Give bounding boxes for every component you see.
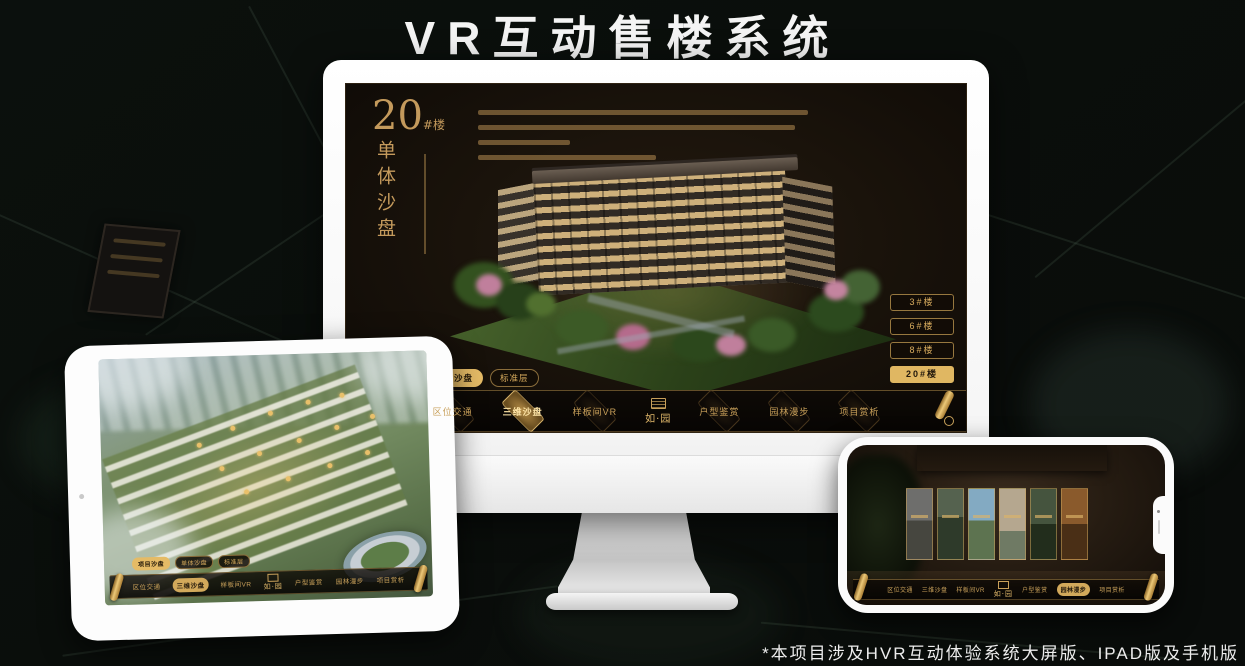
tree xyxy=(824,280,848,300)
headline-divider xyxy=(424,154,426,254)
ipad-tab-standard-floor[interactable]: 标准层 xyxy=(218,554,250,568)
ipad-nav-item-garden-walk[interactable]: 园林漫步 xyxy=(335,573,365,588)
building-front-facade xyxy=(533,168,791,295)
building-marker[interactable] xyxy=(334,425,339,430)
phone-nav-item-unit-plans[interactable]: 户型鉴赏 xyxy=(1022,585,1048,594)
map-road xyxy=(1034,84,1245,278)
ipad-nav-item-location[interactable]: 区位交通 xyxy=(131,579,161,594)
phone-brand-emblem-icon xyxy=(998,581,1009,589)
floor-button-6[interactable]: 6#楼 xyxy=(890,318,954,335)
nav-item-project-gallery[interactable]: 项目赏析 xyxy=(837,402,881,421)
building-marker[interactable] xyxy=(257,451,262,456)
building-model[interactable] xyxy=(436,142,916,400)
phone-nav-item-project-gallery[interactable]: 项目赏析 xyxy=(1099,585,1125,594)
brand-emblem-icon xyxy=(651,398,666,409)
phone-nav-item-showroom-vr[interactable]: 样板间VR xyxy=(956,585,984,594)
scene-panel[interactable] xyxy=(937,488,964,560)
scene-panel[interactable] xyxy=(999,488,1026,560)
courtyard-lintel xyxy=(917,445,1107,471)
building-marker[interactable] xyxy=(370,414,375,419)
tree xyxy=(748,318,796,352)
scene-gallery xyxy=(906,488,1088,560)
headline-vertical-label: 单体沙盘 xyxy=(372,140,399,258)
ipad-nav-item-showroom-vr[interactable]: 样板间VR xyxy=(219,576,252,591)
ipad-tab-single-sandbox[interactable]: 单体沙盘 xyxy=(175,555,213,569)
building-marker[interactable] xyxy=(297,438,302,443)
nav-item-unit-plans[interactable]: 户型鉴赏 xyxy=(697,402,741,421)
brand-logo[interactable]: 如·园 xyxy=(645,398,671,425)
floor-button-group: 3#楼 6#楼 8#楼 20#楼 xyxy=(890,294,954,383)
ipad-device: 项目沙盘 单体沙盘 标准层 区位交通 三维沙盘 样板间VR 如·园 户型鉴赏 园… xyxy=(64,336,460,642)
monitor-stand-neck xyxy=(558,510,710,600)
ipad-nav-item-project-gallery[interactable]: 项目赏析 xyxy=(376,572,406,587)
ipad-screen: 项目沙盘 单体沙盘 标准层 区位交通 三维沙盘 样板间VR 如·园 户型鉴赏 园… xyxy=(98,350,433,605)
ipad-brand-logo-text: 如·园 xyxy=(264,581,284,592)
building-unit: #楼 xyxy=(423,118,445,132)
phone-nav-item-3d-sandbox[interactable]: 三维沙盘 xyxy=(922,585,948,594)
scene-panel[interactable] xyxy=(1030,488,1057,560)
building-marker[interactable] xyxy=(365,450,370,455)
ipad-nav-item-3d-sandbox[interactable]: 三维沙盘 xyxy=(172,578,208,593)
scroll-bar-icon xyxy=(934,390,955,421)
nav-item-garden-walk[interactable]: 园林漫步 xyxy=(767,402,811,421)
brand-logo-text: 如·园 xyxy=(645,410,671,425)
phone-navbar: 区位交通 三维沙盘 样板间VR 如·园 户型鉴赏 园林漫步 项目赏析 xyxy=(853,579,1159,600)
phone-camera-icon xyxy=(1157,510,1160,513)
building-marker[interactable] xyxy=(339,393,344,398)
scroll-swirl-icon xyxy=(944,416,954,426)
page-title: VR互动售楼系统 xyxy=(0,2,1245,68)
ipad-camera-icon xyxy=(79,493,84,498)
building-side-facade xyxy=(782,177,836,292)
phone-screen: 区位交通 三维沙盘 样板间VR 如·园 户型鉴赏 园林漫步 项目赏析 xyxy=(847,445,1165,605)
ipad-nav-item-unit-plans[interactable]: 户型鉴赏 xyxy=(294,574,324,589)
floor-button-3[interactable]: 3#楼 xyxy=(890,294,954,311)
building-marker[interactable] xyxy=(286,476,291,481)
building-headline: 20#楼 单体沙盘 xyxy=(372,96,445,258)
building-marker[interactable] xyxy=(230,426,235,431)
building-marker[interactable] xyxy=(244,489,249,494)
scene-panel[interactable] xyxy=(968,488,995,560)
nav-item-showroom-vr[interactable]: 样板间VR xyxy=(571,402,620,421)
phone-device: 区位交通 三维沙盘 样板间VR 如·园 户型鉴赏 园林漫步 项目赏析 xyxy=(838,437,1174,613)
phone-notch xyxy=(1153,496,1166,554)
phone-nav-item-garden-walk[interactable]: 园林漫步 xyxy=(1057,583,1091,596)
building-marker[interactable] xyxy=(306,400,311,405)
phone-brand-logo[interactable]: 如·园 xyxy=(994,581,1013,599)
scene-panel[interactable] xyxy=(906,488,933,560)
nav-item-3d-sandbox[interactable]: 三维沙盘 xyxy=(501,402,545,421)
building-number: 20 xyxy=(372,93,423,139)
ipad-tab-project-sandbox[interactable]: 项目沙盘 xyxy=(132,557,170,571)
phone-speaker-icon xyxy=(1158,520,1160,534)
tree xyxy=(476,274,502,296)
phone-brand-logo-text: 如·园 xyxy=(994,589,1013,599)
map-road xyxy=(968,208,1245,315)
monitor-stand-base xyxy=(546,593,738,610)
tree xyxy=(526,292,556,316)
tab-standard-floor[interactable]: 标准层 xyxy=(490,369,539,387)
floor-button-8[interactable]: 8#楼 xyxy=(890,342,954,359)
footnote: *本项目涉及HVR互动体验系统大屏版、IPAD版及手机版 xyxy=(762,639,1239,664)
scroll-menu-icon[interactable] xyxy=(932,392,958,426)
floor-button-20[interactable]: 20#楼 xyxy=(890,366,954,383)
ipad-brand-logo[interactable]: 如·园 xyxy=(263,573,283,592)
scene-panel[interactable] xyxy=(1061,488,1088,560)
phone-nav-item-location[interactable]: 区位交通 xyxy=(887,585,913,594)
map-plaque xyxy=(87,223,180,318)
promo-screenshot: VR互动售楼系统 20#楼 单体沙盘 xyxy=(0,0,1245,666)
